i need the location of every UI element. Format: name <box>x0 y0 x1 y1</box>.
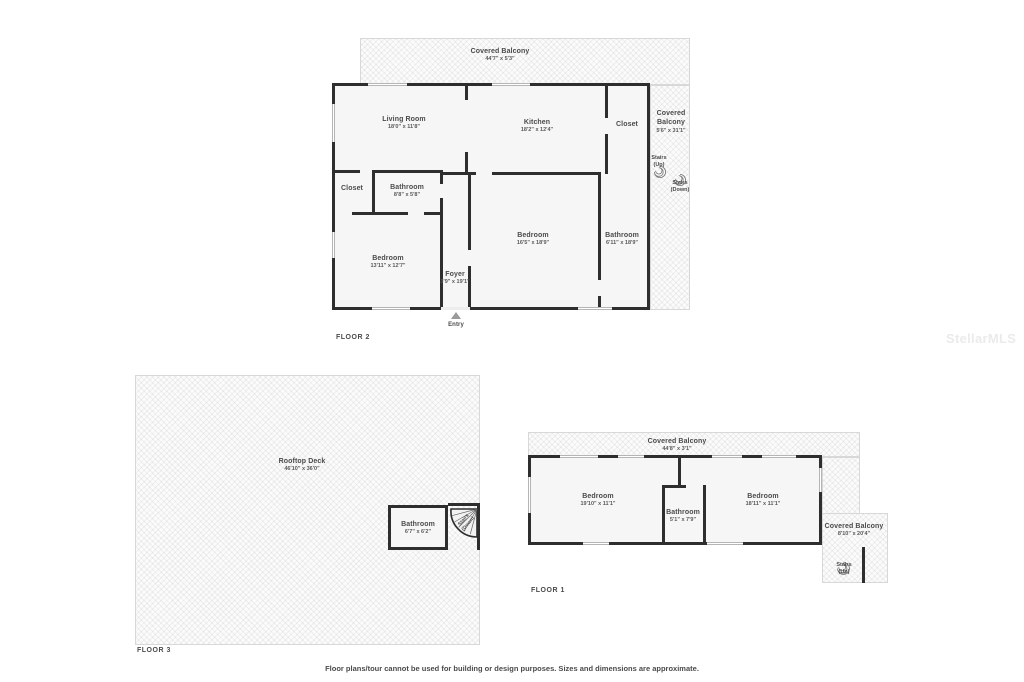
floor1-balcony-side-area <box>822 457 860 515</box>
floor2-stairs-down-label: Stairs (Down) <box>663 180 697 193</box>
room-name: Covered Balcony <box>648 438 707 445</box>
stairs-text: (Up) <box>643 162 675 169</box>
floor2-stairs-up-label: Stairs (Up) <box>643 155 675 168</box>
floor1-balcony-right-label: Covered Balcony 8'10" x 20'4" <box>822 522 886 539</box>
window <box>618 455 644 458</box>
room-name: Bedroom <box>747 493 778 500</box>
disclaimer-text: Floor plans/tour cannot be used for buil… <box>0 664 1024 673</box>
floor1-balcony-top-label: Covered Balcony 44'8" x 3'1" <box>607 437 747 454</box>
room-dims: 18'11" x 11'1" <box>713 501 813 508</box>
stairs-text: (Down) <box>663 187 697 194</box>
floorplan-page: Covered Balcony 44'7" x 5'3" Living Room… <box>0 0 1024 682</box>
watermark: StellarMLS <box>946 331 1016 346</box>
window <box>707 542 743 545</box>
stairs-text: (Up) <box>828 569 860 576</box>
floor1-bedroom-right-label: Bedroom 18'11" x 11'1" <box>713 492 813 509</box>
floor1-stairs-up-label: Stairs (Up) <box>828 562 860 575</box>
floor1-bathroom-label: Bathroom 5'1" x 7'9" <box>653 508 713 525</box>
window <box>819 468 822 492</box>
room-dims: 5'1" x 7'9" <box>653 517 713 524</box>
window <box>560 455 598 458</box>
stairs-text: Stairs <box>828 562 860 569</box>
wall <box>662 485 686 488</box>
window <box>583 542 609 545</box>
room-name: Bedroom <box>582 493 613 500</box>
room-dims: 44'8" x 3'1" <box>607 446 747 453</box>
room-dims: 19'10" x 11'1" <box>548 501 648 508</box>
floor1-plan: Covered Balcony 44'8" x 3'1" Bedroom 19'… <box>0 0 1024 682</box>
stairs-text: Stairs <box>643 155 675 162</box>
floor1-tag: FLOOR 1 <box>531 587 565 594</box>
stairs-text: Stairs <box>663 180 697 187</box>
room-dims: 8'10" x 20'4" <box>822 531 886 538</box>
wall <box>678 455 681 487</box>
floor1-bedroom-left-label: Bedroom 19'10" x 11'1" <box>548 492 648 509</box>
window <box>712 455 742 458</box>
room-name: Bathroom <box>666 509 700 516</box>
room-name: Covered Balcony <box>825 523 884 530</box>
window <box>528 477 531 513</box>
wall <box>862 547 865 583</box>
window <box>762 455 796 458</box>
